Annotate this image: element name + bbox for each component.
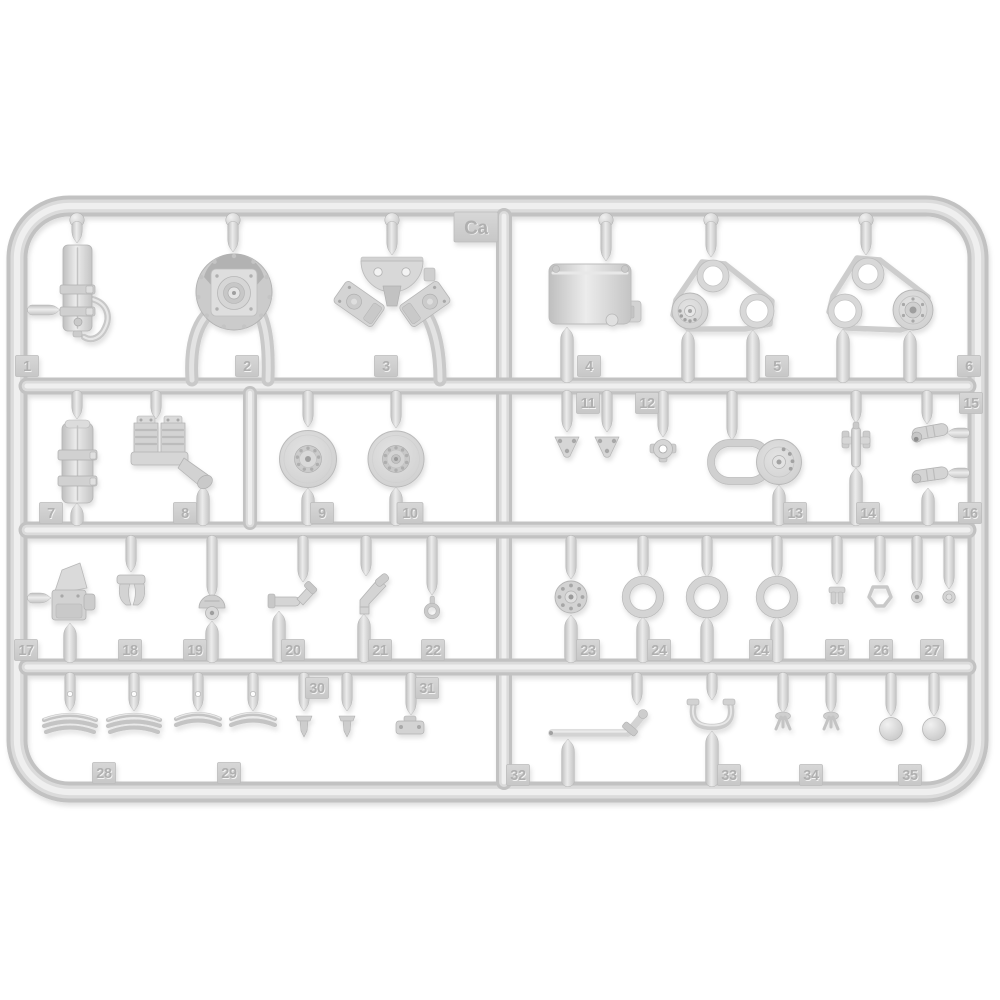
part-13-belt-pulley — [708, 440, 802, 485]
runner-pin — [886, 672, 896, 716]
runner-pin — [727, 390, 737, 440]
part-16-fitting — [911, 466, 949, 483]
part-20-elbow-pipe — [268, 581, 318, 608]
bolt-dot — [303, 467, 306, 470]
runner-pin — [361, 535, 371, 576]
runner-pin — [912, 535, 922, 590]
bolt-dot — [680, 314, 683, 317]
runner-pin — [851, 390, 861, 423]
runner-pin — [861, 221, 871, 255]
runner-pin — [832, 535, 842, 584]
part-number-label: 26 — [873, 643, 889, 659]
runner-pin — [206, 621, 219, 663]
runner-pin — [778, 672, 788, 713]
part-28-29-leaf-springs — [44, 713, 275, 732]
part-number-label: 27 — [924, 643, 940, 659]
part-22-eye-pin — [424, 596, 440, 619]
bolt-dot — [791, 459, 795, 463]
bolt-dot — [569, 607, 573, 611]
part-number-label: 24 — [651, 643, 667, 659]
part-24-rings — [622, 576, 798, 618]
runner-pin — [207, 535, 217, 598]
bolt-dot — [317, 455, 320, 458]
part-number-label: 20 — [285, 643, 301, 659]
part-number-label: 33 — [721, 768, 737, 784]
bolt-dot — [199, 275, 203, 279]
bolt-dot — [788, 452, 792, 456]
part-number-label: 12 — [639, 396, 655, 412]
part-number-label: 10 — [402, 506, 418, 522]
runner-pin — [929, 672, 939, 716]
bolt-dot — [405, 461, 408, 464]
bolt-dot — [384, 461, 387, 464]
sprue-photo: 1122334455667788991010111112121313141415… — [0, 0, 1000, 1000]
bolt-dot — [401, 448, 404, 451]
sprue-svg: 1122334455667788991010111112121313141415… — [0, 0, 1000, 1000]
bolt-dot — [212, 260, 216, 264]
runner-pin — [706, 731, 719, 787]
part-8-manifold — [131, 416, 215, 492]
bolt-dot — [683, 318, 686, 321]
runner-pin — [72, 221, 82, 243]
runner-pin-hole — [195, 691, 200, 696]
part-18-fork — [117, 575, 145, 605]
part-number-label: 3 — [382, 359, 390, 375]
runner-pin — [922, 390, 932, 424]
bolt-dot — [405, 454, 408, 457]
part-number-label: 2 — [243, 359, 251, 375]
bolt-dot — [388, 466, 391, 469]
part-number-label: 18 — [122, 643, 138, 659]
part-number-label: 30 — [309, 681, 325, 697]
bolt-dot — [297, 463, 300, 466]
runner-pin — [947, 428, 970, 438]
bolt-dot — [306, 447, 309, 450]
runner-pin — [391, 390, 401, 428]
part-17-pump — [52, 563, 95, 620]
bolt-dot — [205, 313, 209, 317]
part-26-shackle — [869, 587, 891, 606]
runner-pin — [904, 331, 917, 383]
part-number-label: 8 — [181, 506, 189, 522]
runner-pin — [197, 486, 210, 526]
part-number-label: 32 — [510, 768, 526, 784]
bolt-dot — [688, 319, 691, 322]
bolt-dot — [232, 254, 236, 258]
runner-pin — [702, 535, 712, 577]
runner-pin — [303, 390, 313, 427]
part-27-knobs — [912, 591, 956, 603]
part-number-label: 22 — [425, 643, 441, 659]
runner-pin — [682, 330, 695, 383]
bolt-dot — [394, 469, 397, 472]
bolt-dot — [313, 449, 316, 452]
part-number-label: 35 — [902, 768, 918, 784]
bolt-dot — [902, 303, 905, 306]
part-5-belt-pulleys — [672, 260, 774, 329]
part-9-wheel — [280, 431, 337, 488]
bolt-dot — [561, 587, 565, 591]
bolt-dot — [678, 309, 681, 312]
runner-pin — [947, 468, 970, 478]
part-1-filter-cylinder — [60, 245, 108, 339]
part-30-clips — [296, 716, 355, 737]
bolt-dot — [789, 467, 793, 471]
runner-pin — [565, 615, 578, 663]
runner-pin — [826, 672, 836, 713]
bolt-dot — [902, 314, 905, 317]
bolt-dot — [384, 454, 387, 457]
part-number-label: 6 — [965, 359, 973, 375]
runner-pin — [658, 390, 668, 437]
part-4-cover-box — [549, 264, 641, 326]
part-number-label: 7 — [47, 506, 55, 522]
part-number-label: 24 — [753, 643, 769, 659]
bolt-dot — [394, 446, 397, 449]
bolt-dot — [401, 466, 404, 469]
part-number-label: 15 — [963, 396, 979, 412]
runner-pin — [28, 593, 52, 603]
runner-pin — [562, 390, 572, 432]
part-12-ring-mount — [650, 440, 676, 463]
runner-pin — [944, 535, 954, 589]
bolt-dot — [577, 587, 581, 591]
bolt-dot — [310, 467, 313, 470]
part-15-fitting — [910, 423, 949, 443]
runner-pin — [562, 739, 575, 787]
bolt-dot — [259, 313, 263, 317]
part-6-belt-pulleys — [828, 258, 933, 330]
runner-pin — [151, 390, 161, 419]
bolt-dot — [242, 324, 246, 328]
bolt-dot — [782, 447, 786, 451]
runner-pin — [342, 672, 352, 711]
bolt-dot — [299, 449, 302, 452]
bolt-dot — [267, 295, 271, 299]
bolt-dot — [911, 297, 914, 300]
runner-pin — [126, 535, 136, 572]
part-number-label: 28 — [96, 766, 112, 782]
runner-pin-hole — [67, 691, 72, 696]
part-23-flange — [555, 581, 587, 613]
part-33-u-handle — [687, 699, 735, 727]
part-10-wheel — [368, 431, 424, 487]
part-number-label: 9 — [318, 506, 326, 522]
runner-pin — [601, 221, 611, 261]
part-number-label: 5 — [773, 359, 781, 375]
part-2-flywheel — [196, 254, 272, 330]
bolt-dot — [561, 603, 565, 607]
runner-pin — [427, 535, 437, 595]
runner-pin — [228, 221, 238, 252]
runner-pin-hole — [250, 691, 255, 696]
runner-pin — [772, 535, 782, 577]
part-number-label: 19 — [187, 643, 203, 659]
runner-pin — [638, 535, 648, 577]
bolt-dot — [316, 463, 319, 466]
bolt-dot — [693, 318, 696, 321]
part-11-triangle-brackets — [555, 437, 619, 457]
part-number-label: 29 — [221, 766, 237, 782]
bolt-dot — [251, 260, 255, 264]
part-number-label: 23 — [580, 643, 596, 659]
runner-pin — [406, 672, 416, 715]
bolt-dot — [558, 595, 562, 599]
runner-pin — [707, 672, 717, 700]
runner-pin — [566, 535, 576, 579]
bolt-dot — [296, 455, 299, 458]
bolt-dot — [265, 275, 269, 279]
part-number-label: 14 — [860, 506, 876, 522]
bolt-dot — [388, 448, 391, 451]
runner-pin — [747, 330, 760, 383]
runner-pin — [561, 327, 574, 383]
bolt-dot — [921, 314, 924, 317]
runner-pin — [64, 623, 77, 663]
runner-pin — [298, 535, 308, 582]
bolt-dot — [911, 319, 914, 322]
part-number-label: 13 — [787, 506, 803, 522]
part-31-block — [396, 716, 424, 734]
part-number-label: 11 — [581, 396, 596, 412]
part-number-label: 4 — [585, 359, 593, 375]
part-number-label: 34 — [803, 768, 819, 784]
runner-pin — [706, 221, 716, 257]
part-number-label: 17 — [18, 643, 34, 659]
bolt-dot — [921, 303, 924, 306]
part-number-label: 31 — [419, 681, 435, 697]
runner-pin — [701, 617, 714, 663]
bolt-dot — [196, 295, 200, 299]
part-number-label: 1 — [23, 359, 31, 375]
bolt-dot — [581, 595, 585, 599]
part-21-lever — [360, 572, 390, 614]
part-7-tank — [58, 420, 97, 503]
runner-pin — [632, 672, 642, 705]
part-number-label: 16 — [962, 506, 978, 522]
runner-pin-hole — [131, 691, 136, 696]
runner-pin — [602, 390, 612, 432]
part-19-dome-bracket — [199, 595, 225, 620]
runner-pin — [922, 488, 935, 526]
part-25-mini-fork — [829, 587, 845, 604]
bolt-dot — [577, 603, 581, 607]
runner-pin — [71, 503, 84, 526]
runner-pin — [837, 329, 850, 383]
part-number-label: 25 — [829, 643, 845, 659]
part-34-claw-pins — [776, 712, 839, 729]
part-32-pipe — [549, 710, 648, 737]
bolt-dot — [569, 584, 573, 588]
runner-pin — [875, 535, 885, 582]
runner-pin — [72, 390, 82, 419]
part-14-bracket — [842, 422, 870, 467]
runner-pin — [387, 221, 397, 255]
part-35-balls — [880, 718, 946, 741]
sprue-code-label: Ca — [464, 218, 488, 239]
part-number-label: 21 — [372, 643, 388, 659]
runner-pin — [28, 305, 61, 315]
bolt-dot — [222, 324, 226, 328]
